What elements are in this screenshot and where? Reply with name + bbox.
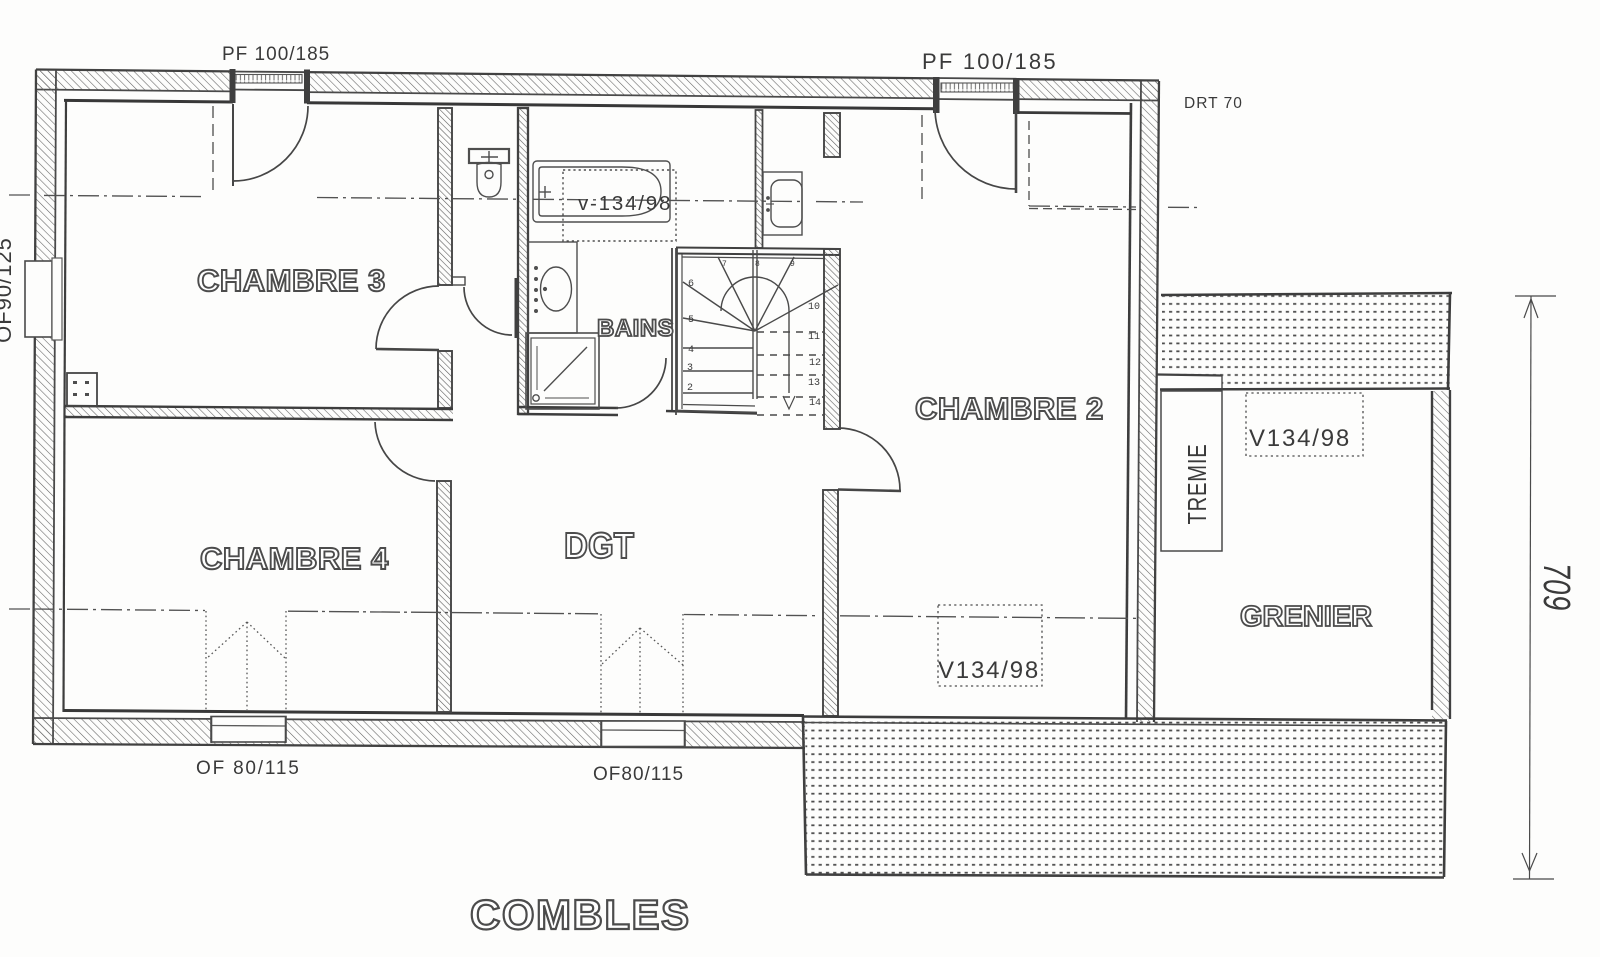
svg-text:BAINS: BAINS [597,315,674,342]
svg-text:DGT: DGT [564,525,634,566]
svg-text:v-134/98: v-134/98 [578,192,672,215]
svg-text:709: 709 [1535,563,1577,611]
svg-text:CHAMBRE 4: CHAMBRE 4 [200,541,389,576]
svg-text:CHAMBRE 3: CHAMBRE 3 [197,263,386,298]
svg-text:11: 11 [808,332,820,343]
svg-text:DRT 70: DRT 70 [1184,95,1243,112]
svg-text:V134/98: V134/98 [938,657,1040,684]
svg-text:PF 100/185: PF 100/185 [922,49,1058,74]
svg-text:OF80/115: OF80/115 [593,764,684,785]
svg-text:2: 2 [687,383,693,394]
svg-text:4: 4 [688,345,694,356]
svg-text:COMBLES: COMBLES [470,891,691,938]
svg-text:OF90/125: OF90/125 [0,237,16,343]
svg-text:3: 3 [687,363,693,374]
svg-text:6: 6 [688,279,694,290]
svg-text:V134/98: V134/98 [1249,425,1351,452]
svg-text:13: 13 [808,378,820,389]
svg-text:7: 7 [722,260,727,269]
svg-text:9: 9 [790,260,795,269]
svg-text:PF 100/185: PF 100/185 [222,44,330,65]
svg-text:14: 14 [809,398,821,409]
svg-text:12: 12 [809,358,821,369]
svg-text:OF 80/115: OF 80/115 [196,758,301,779]
svg-text:CHAMBRE 2: CHAMBRE 2 [915,391,1104,426]
svg-text:10: 10 [808,302,820,313]
svg-text:TREMIE: TREMIE [1182,444,1212,525]
svg-text:5: 5 [688,315,694,326]
svg-text:GRENIER: GRENIER [1240,601,1372,633]
svg-text:8: 8 [755,260,760,269]
